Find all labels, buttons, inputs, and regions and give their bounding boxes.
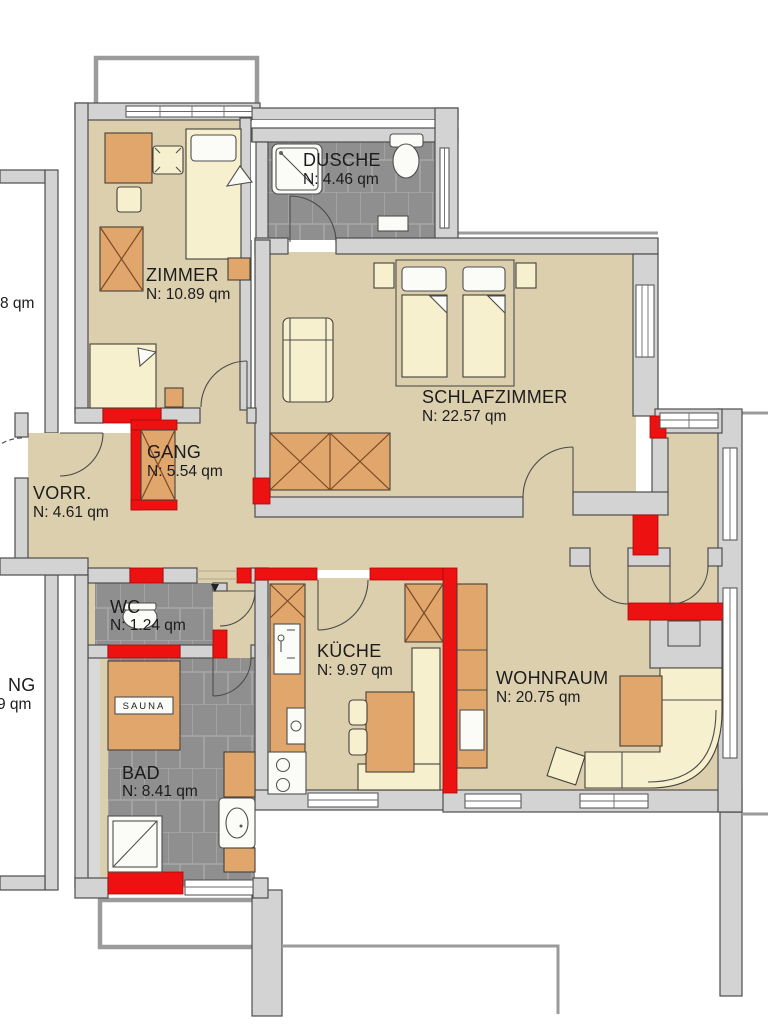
label-gang: GANG — [147, 442, 201, 462]
area-gang: N: 5.54 qm — [147, 463, 223, 480]
wall-bad-top-a — [88, 645, 108, 658]
floor-plan-canvas: SAUNA — [0, 0, 768, 1024]
area-schlafzimmer: N: 22.57 qm — [422, 408, 506, 425]
sauna-label: SAUNA — [123, 701, 166, 712]
wall-unit — [457, 584, 487, 768]
red-bad-top — [108, 645, 180, 658]
window-wohnraum-bottom-a — [465, 794, 521, 808]
wardrobe-schlaf — [270, 433, 390, 490]
label-dusche: DUSCHE — [303, 150, 381, 170]
sink-unit — [274, 624, 300, 674]
window-wohnraum-right-b — [723, 588, 737, 758]
bench-vertical — [412, 648, 440, 772]
wall-vorr-left-top — [15, 413, 28, 437]
wall-bad-bottom-a — [75, 878, 108, 898]
corridor-stub-top — [0, 170, 45, 183]
area-zimmer: N: 10.89 qm — [146, 286, 230, 303]
wall-zimmer-bottom-c — [247, 408, 256, 423]
cabinet-bad-upper — [224, 752, 255, 797]
red-bad-bottom — [108, 872, 183, 894]
area-kueche: N: 9.97 qm — [317, 662, 393, 679]
window-dusche-right — [440, 148, 449, 228]
corridor-stub-bottom — [0, 876, 45, 890]
sauna: SAUNA — [108, 661, 180, 750]
coffee-table — [620, 676, 662, 746]
red-gang-wardrobe-bottom — [131, 500, 177, 510]
corridor-wall-lower — [45, 575, 58, 890]
area-bad: N: 8.41 qm — [122, 783, 198, 800]
wall-schlaf-bottom-left — [255, 497, 523, 517]
cabinet-bad-lower — [224, 848, 255, 872]
wall-kueche-left — [255, 580, 268, 793]
red-wc-top-a — [130, 568, 163, 583]
wall-bad-left — [75, 575, 88, 888]
label-vorraum: VORR. — [33, 483, 92, 503]
wall-zimmer-bottom-a — [75, 408, 103, 423]
neighbor-wall-bottom-right — [720, 812, 742, 996]
shaft-strip — [251, 142, 256, 240]
armchair-schlaf — [283, 318, 333, 402]
area-wohnraum: N: 20.75 qm — [496, 689, 580, 706]
red-wc-top-b — [237, 568, 251, 583]
label-kueche: KÜCHE — [317, 641, 382, 661]
wall-wc-top-b — [163, 568, 197, 583]
wall-bad-bottom-b — [253, 878, 268, 898]
door-entry — [0, 438, 22, 478]
wall-schlaf-right-lower — [652, 438, 668, 494]
wall-hall-south-c — [708, 548, 722, 566]
wardrobe-zimmer — [100, 227, 143, 291]
red-wohnraum-bar — [628, 603, 730, 620]
label-zimmer: ZIMMER — [146, 265, 219, 285]
label-bad: BAD — [122, 763, 160, 783]
red-kueche-top-b — [370, 568, 443, 580]
wall-schlaf-bottom-right — [573, 492, 668, 515]
red-schlaf-left — [253, 478, 270, 504]
window-zimmer-top — [126, 106, 252, 117]
label-wohnraum: WOHNRAUM — [496, 668, 608, 688]
dusche-top-gap — [252, 120, 458, 128]
shelf-dusche — [378, 216, 408, 231]
wall-bad-top-b — [180, 645, 213, 658]
chair-1 — [349, 700, 367, 725]
window-bad-bottom — [185, 880, 253, 895]
neighbor-label-ng: NG — [8, 675, 36, 695]
wall-dusche-top-outer — [252, 108, 458, 120]
area-vorraum: N: 4.61 qm — [33, 504, 109, 521]
wall-dusche-left — [256, 142, 268, 242]
wall-dusche-top-inner — [252, 128, 458, 142]
pillow-left — [402, 267, 446, 291]
corridor-wall-upper — [45, 170, 58, 433]
neighbor-wall-bottom-left — [252, 890, 282, 1016]
neighbor-label-top: 8 qm — [0, 295, 34, 312]
balcony-bottom — [100, 900, 255, 947]
area-wc: N: 1.24 qm — [110, 617, 186, 634]
nightstand-right — [516, 263, 536, 288]
dining-table — [366, 692, 414, 772]
wall-wc-top-a — [88, 568, 130, 583]
desk — [105, 133, 152, 183]
window-wohnraum-bottom-b — [580, 794, 648, 808]
pillow — [191, 135, 236, 161]
wall-schlaf-top-b — [336, 238, 658, 254]
washbasin — [219, 798, 255, 848]
chair-2 — [349, 729, 367, 755]
window-wohnraum-upper — [660, 413, 718, 428]
side-table-zimmer — [165, 388, 183, 407]
label-wc: WC — [110, 597, 141, 617]
tall-cupboard-kueche — [405, 584, 443, 642]
mattress-left — [402, 295, 447, 377]
nightstand-zimmer — [228, 258, 250, 280]
bed-zimmer-2 — [90, 344, 156, 408]
pillow-right — [463, 267, 505, 291]
red-kueche-right — [443, 568, 457, 793]
neighbor-label-qm: 9 qm — [0, 696, 31, 713]
window-kueche-bottom — [308, 793, 378, 807]
neighbor-outline-bottom — [282, 946, 558, 1014]
wall-schlaf-left — [255, 240, 270, 502]
wall-vorr-left-bottom — [15, 478, 28, 570]
dishwasher — [287, 708, 305, 744]
wall-zimmer-left — [75, 103, 88, 413]
window-schlaf-right — [636, 285, 654, 357]
nightstand-left — [374, 263, 394, 288]
red-gang-wardrobe-left — [131, 420, 141, 510]
shower-bad — [108, 816, 162, 872]
stove — [268, 752, 306, 794]
floor-plan-page: SAUNA — [0, 0, 768, 1024]
red-kueche-top-a — [255, 568, 317, 580]
wall-hall-south-a — [570, 548, 590, 566]
area-dusche: N: 4.46 qm — [303, 171, 379, 188]
wall-vorr-bottom — [0, 558, 88, 575]
window-wohnraum-right-a — [723, 448, 737, 540]
chimney-block — [650, 620, 722, 668]
red-hall-pier — [633, 515, 658, 555]
stool — [117, 187, 141, 212]
red-wc-right — [213, 630, 227, 658]
label-schlafzimmer: SCHLAFZIMMER — [422, 387, 568, 407]
red-gang-wardrobe-top — [131, 420, 177, 430]
